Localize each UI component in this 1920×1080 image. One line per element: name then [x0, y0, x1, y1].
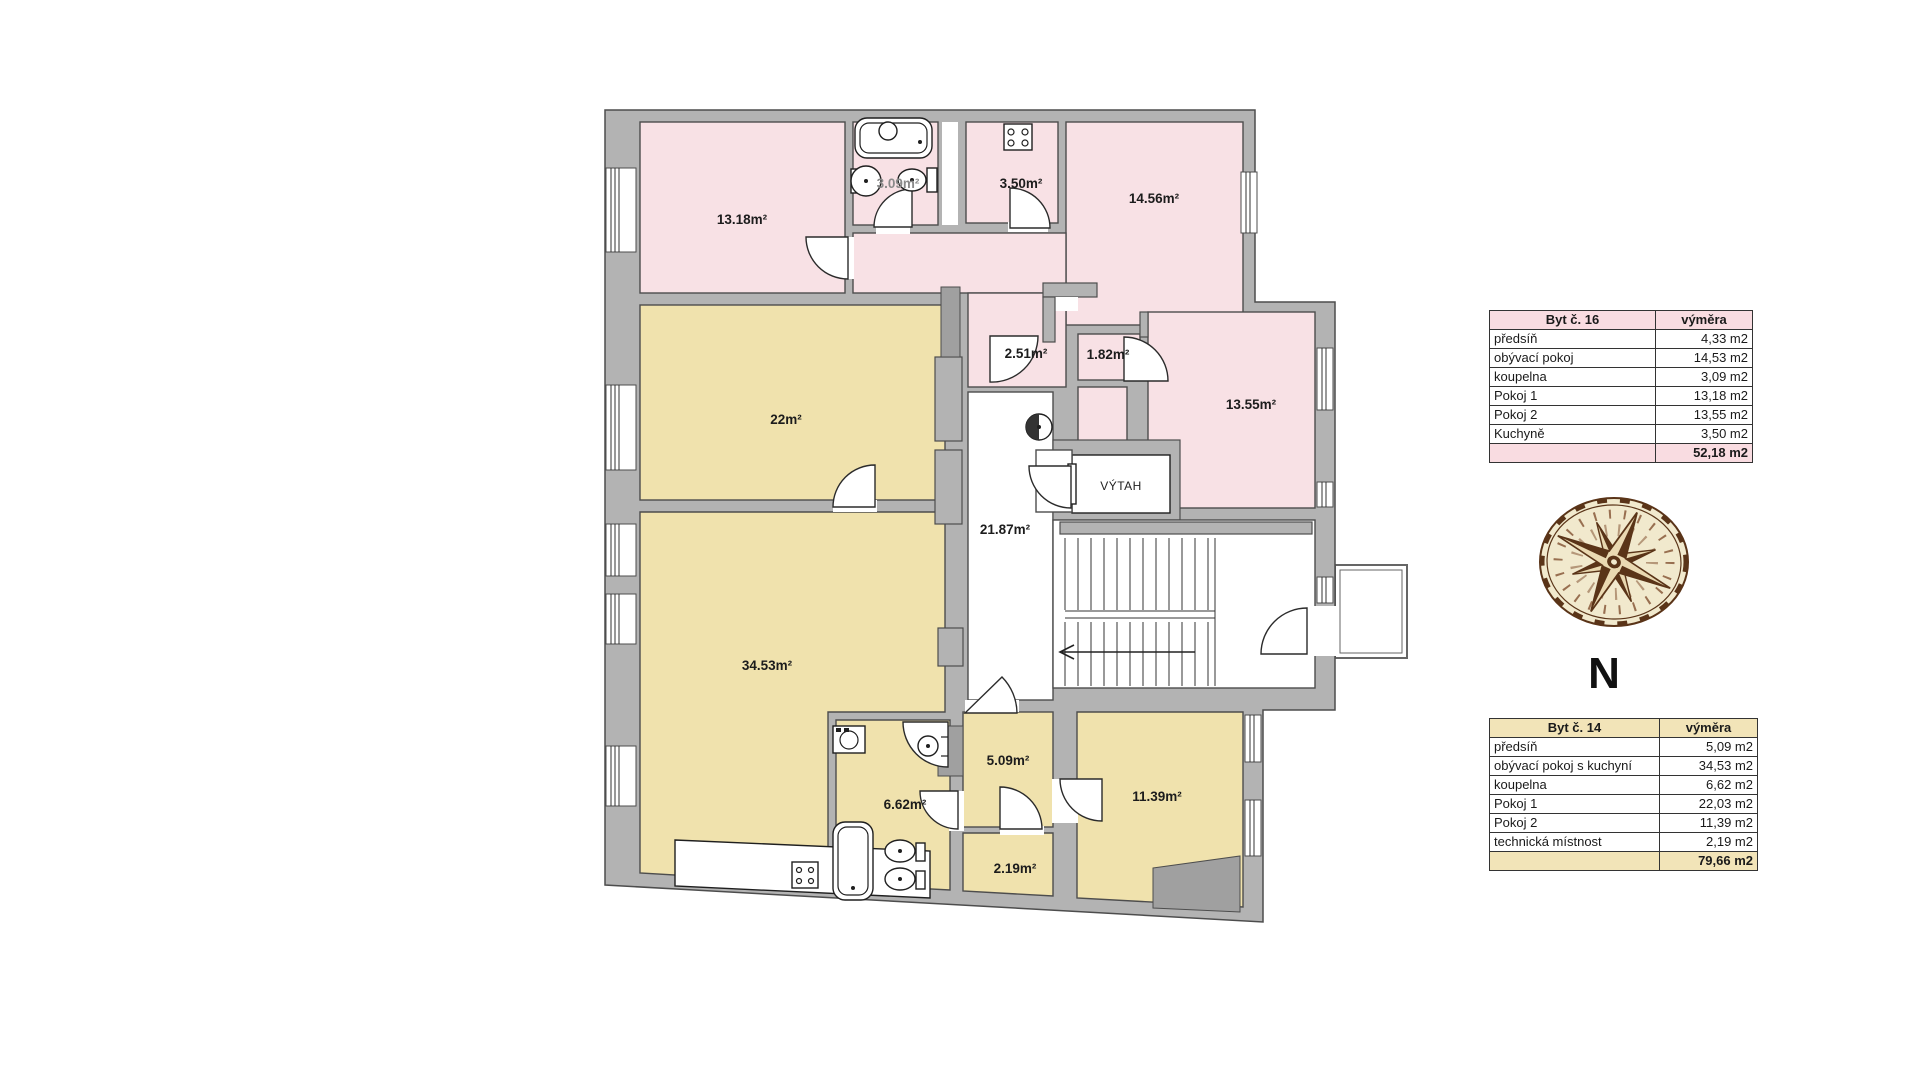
label-corridor-21-87: 21.87m²: [980, 522, 1031, 537]
row-label: předsíň: [1490, 330, 1656, 349]
hall-lobby-strip: [1078, 387, 1127, 443]
label-room-34-53: 34.53m²: [742, 658, 793, 673]
table-total-row: 52,18 m2: [1490, 444, 1753, 463]
balcony: [1335, 565, 1407, 658]
row-label: Pokoj 1: [1490, 387, 1656, 406]
table-row: Pokoj 122,03 m2: [1490, 795, 1758, 814]
row-label: technická místnost: [1490, 833, 1660, 852]
row-label: Pokoj 2: [1490, 406, 1656, 425]
table-row: koupelna3,09 m2: [1490, 368, 1753, 387]
row-value: 5,09 m2: [1660, 738, 1758, 757]
table-row: obývací pokoj s kuchyní34,53 m2: [1490, 757, 1758, 776]
label-room-11-39: 11.39m²: [1132, 789, 1182, 804]
label-bath-3-09: 3.09m²: [877, 176, 920, 191]
row-value: 14,53 m2: [1656, 349, 1753, 368]
table-area-header: výměra: [1656, 311, 1753, 330]
toilet-icon: [885, 840, 925, 862]
row-value: 22,03 m2: [1660, 795, 1758, 814]
row-label: obývací pokoj: [1490, 349, 1656, 368]
label-room-22: 22m²: [770, 412, 802, 427]
window-icon: [1317, 482, 1333, 507]
window-icon: [1245, 800, 1261, 856]
total-spacer: [1490, 852, 1660, 871]
row-label: Pokoj 1: [1490, 795, 1660, 814]
window-icon: [1317, 577, 1333, 603]
row-value: 13,55 m2: [1656, 406, 1753, 425]
label-room-13-55: 13.55m²: [1226, 397, 1277, 412]
window-icon: [1241, 172, 1257, 233]
washing-machine-icon: [833, 726, 865, 753]
hall-strip-byt16: [853, 233, 1066, 293]
label-living-14-56: 14.56m²: [1129, 191, 1180, 206]
row-value: 4,33 m2: [1656, 330, 1753, 349]
bathtub-icon: [833, 822, 873, 900]
stove-icon: [1004, 124, 1032, 150]
label-hall-1-82: 1.82m²: [1087, 347, 1130, 362]
label-hall-2-51: 2.51m²: [1005, 346, 1048, 361]
page: 13.18m² 3.09m² 3.50m² 14.56m² 2.51m² 1.8…: [0, 0, 1920, 1080]
row-value: 3,50 m2: [1656, 425, 1753, 444]
row-value: 6,62 m2: [1660, 776, 1758, 795]
total-spacer: [1490, 444, 1656, 463]
table-row: Kuchyně3,50 m2: [1490, 425, 1753, 444]
table-row: technická místnost2,19 m2: [1490, 833, 1758, 852]
row-label: Pokoj 2: [1490, 814, 1660, 833]
row-label: předsíň: [1490, 738, 1660, 757]
window-icon: [1245, 715, 1261, 762]
row-value: 13,18 m2: [1656, 387, 1753, 406]
room-pokoj1-byt14: [640, 305, 945, 500]
row-value: 3,09 m2: [1656, 368, 1753, 387]
table-header-row: Byt č. 16 výměra: [1490, 311, 1753, 330]
table-byt14: Byt č. 14 výměra předsíň5,09 m2 obývací …: [1489, 718, 1758, 871]
row-value: 2,19 m2: [1660, 833, 1758, 852]
room-pokoj1-byt16: [640, 122, 845, 293]
window-icon: [606, 385, 636, 470]
table-row: koupelna6,62 m2: [1490, 776, 1758, 795]
table-title: Byt č. 14: [1490, 719, 1660, 738]
toilet-icon: [885, 868, 925, 890]
bathtub-icon: [855, 118, 932, 158]
row-label: koupelna: [1490, 368, 1656, 387]
shaft-niche: [942, 122, 958, 225]
row-value: 11,39 m2: [1660, 814, 1758, 833]
total-value: 52,18 m2: [1656, 444, 1753, 463]
total-value: 79,66 m2: [1660, 852, 1758, 871]
label-elevator: VÝTAH: [1100, 478, 1142, 493]
label-bath-6-62: 6.62m²: [884, 797, 927, 812]
table-row: Pokoj 113,18 m2: [1490, 387, 1753, 406]
row-value: 34,53 m2: [1660, 757, 1758, 776]
row-label: koupelna: [1490, 776, 1660, 795]
window-icon: [606, 168, 636, 252]
table-total-row: 79,66 m2: [1490, 852, 1758, 871]
table-row: předsíň4,33 m2: [1490, 330, 1753, 349]
label-kitchen-3-50: 3.50m²: [1000, 176, 1043, 191]
table-row: obývací pokoj14,53 m2: [1490, 349, 1753, 368]
window-icon: [606, 746, 636, 806]
window-icon: [606, 524, 636, 576]
north-letter: N: [1588, 649, 1620, 698]
label-tech-2-19: 2.19m²: [994, 861, 1037, 876]
table-area-header: výměra: [1660, 719, 1758, 738]
window-icon: [606, 594, 636, 644]
boiler-icon: [1026, 414, 1052, 440]
table-byt16: Byt č. 16 výměra předsíň4,33 m2 obývací …: [1489, 310, 1753, 463]
table-row: předsíň5,09 m2: [1490, 738, 1758, 757]
table-row: Pokoj 211,39 m2: [1490, 814, 1758, 833]
table-header-row: Byt č. 14 výměra: [1490, 719, 1758, 738]
row-label: Kuchyně: [1490, 425, 1656, 444]
table-row: Pokoj 213,55 m2: [1490, 406, 1753, 425]
row-label: obývací pokoj s kuchyní: [1490, 757, 1660, 776]
label-hall-5-09: 5.09m²: [987, 753, 1030, 768]
label-room-13-18: 13.18m²: [717, 212, 768, 227]
table-title: Byt č. 16: [1490, 311, 1656, 330]
compass-rose-icon: N: [1534, 492, 1698, 702]
stairwell: [1053, 520, 1315, 688]
window-icon: [1317, 348, 1333, 410]
